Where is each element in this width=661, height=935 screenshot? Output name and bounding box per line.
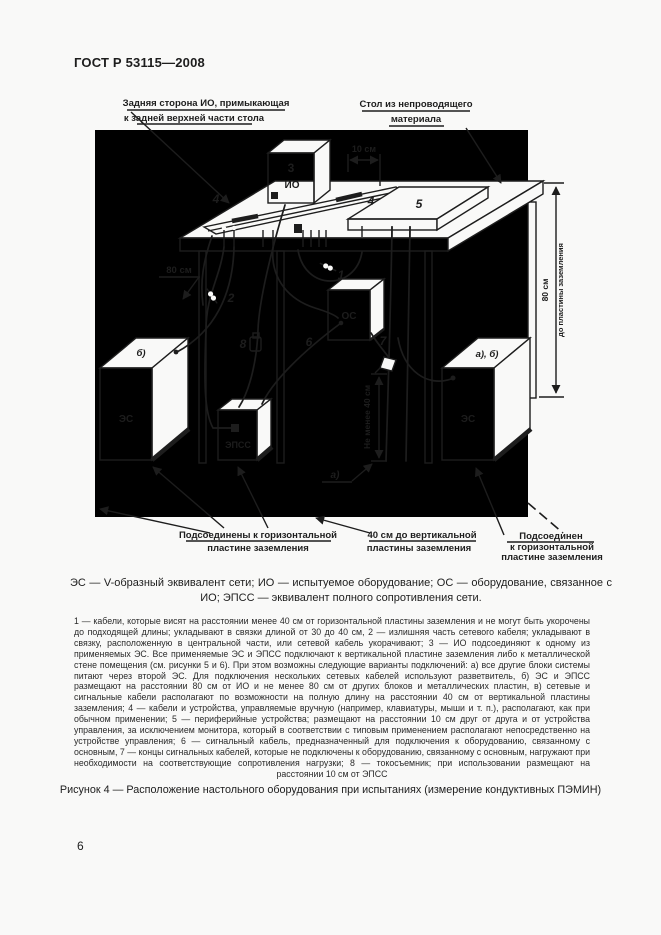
callout-bl-line2: пластине заземления: [207, 543, 309, 554]
callout-io-back-line2: к задней верхней части стола: [124, 113, 265, 124]
strip-block: [294, 224, 302, 233]
io-port: [271, 192, 278, 199]
label-1: 1: [338, 268, 345, 282]
dimension-80cm-right: 80 см до пластины заземления: [539, 183, 565, 397]
callout-io-back-line1: Задняя сторона ИО, примыкающая: [123, 98, 290, 109]
label-2: 2: [227, 291, 235, 305]
label-4-mouse: 4: [367, 194, 375, 208]
io-number: 3: [288, 161, 295, 175]
callout-bm-line1: 40 см до вертикальной: [367, 530, 476, 541]
dim-80cm-left-label: 80 см: [166, 265, 192, 276]
callout-br-line3: пластине заземления: [501, 552, 603, 563]
figure-footnote: 1 — кабели, которые висят на расстоянии …: [74, 616, 590, 780]
cable-end-dot: [339, 321, 344, 326]
es-left-label: ЭС: [119, 414, 133, 425]
figure-4-diagram: 80 см до пластины заземления 3 ИО: [0, 0, 661, 575]
label-8: 8: [240, 337, 247, 351]
io-label: ИО: [285, 180, 300, 191]
callout-table-line1: Стол из непроводящего: [359, 99, 472, 110]
callout-br-line1: Подсоединен: [519, 531, 583, 542]
es-right-variant: а), б): [476, 349, 499, 360]
dim-40cm-label: Не менее 40 см: [362, 385, 372, 449]
dim-10cm-label: 10 см: [352, 144, 377, 154]
cable-plug: [231, 424, 239, 432]
dim-80cm-right-label: 80 см: [540, 279, 550, 302]
variant-a-label: а): [331, 470, 341, 481]
page-number: 6: [77, 839, 84, 853]
figure-legend: ЭС — V-образный эквивалент сети; ИО — ис…: [70, 576, 612, 605]
os-label: ОС: [342, 311, 357, 322]
label-5: 5: [416, 197, 423, 211]
callout-40cm-vertical-plate: 40 см до вертикальной пластины заземлени…: [316, 518, 477, 554]
es-right-label: ЭС: [461, 414, 475, 425]
cable-end-dot: [451, 376, 456, 381]
figure-caption: Рисунок 4 — Расположение настольного обо…: [40, 784, 621, 796]
document-page: { "page": { "header": "ГОСТ Р 53115—2008…: [0, 0, 661, 935]
epss-label: ЭПСС: [225, 440, 251, 450]
callout-bm-line2: пластины заземления: [367, 543, 471, 554]
callout-table-line2: материала: [391, 114, 442, 125]
es-left-variant: б): [136, 348, 145, 359]
cable-end-dot: [174, 350, 179, 355]
label-6: 6: [306, 335, 313, 349]
dim-80cm-right-sublabel: до пластины заземления: [556, 243, 565, 337]
